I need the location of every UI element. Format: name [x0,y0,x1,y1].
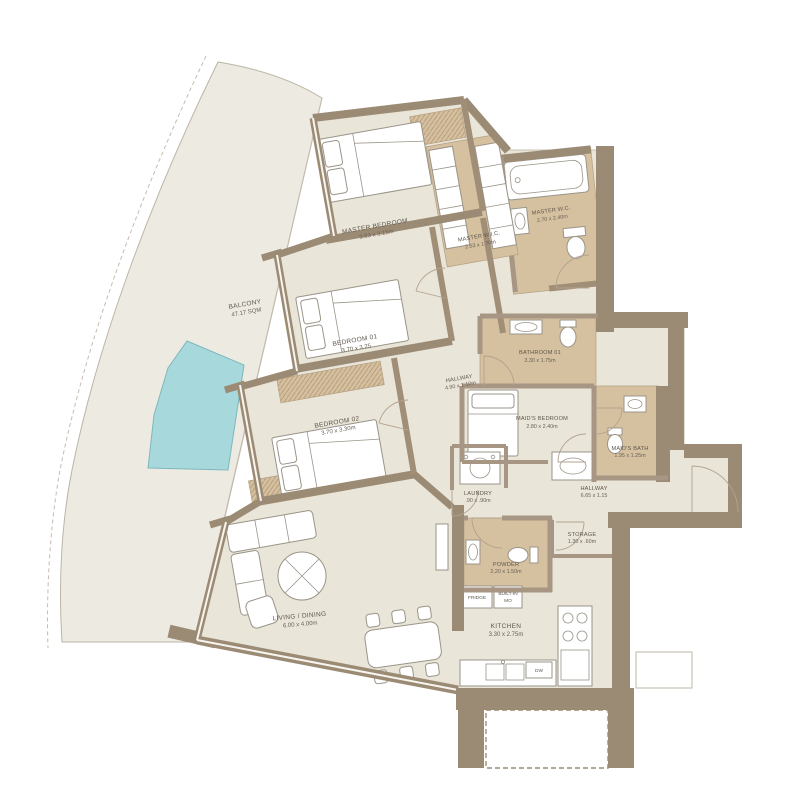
kitchen-dims: 3.30 x 2.75m [489,632,524,638]
fridge-label: FRIDGE [468,595,486,601]
hallway2-dims: 6.65 x 1.15 [581,493,608,499]
kitchen-label: KITCHEN [491,623,522,630]
coffee-table [278,552,326,600]
storage-dims: 1.30 x .60m [568,539,597,545]
floor-plan-page: BALCONY 47.17 SQM MASTER BEDROOM 3.83 x … [0,0,800,800]
washer [460,452,500,484]
laundry-label: LAUNDRY [464,491,492,497]
maids-bath-label: MAID'S BATH [611,446,648,452]
floor-plan-canvas: BALCONY 47.17 SQM MASTER BEDROOM 3.83 x … [0,0,800,800]
bathroom01-dims: 3.30 x 1.75m [524,358,556,364]
built-in-label-1: BUILT-IN [498,591,518,597]
storage-label: STORAGE [568,532,597,538]
powder-label: POWDER [493,562,519,568]
ac-ledge [486,710,608,768]
maids-bedroom-label: MAID'S BEDROOM [516,416,568,422]
maids-bedroom-dims: 2.80 x 2.40m [526,424,558,430]
dishwasher-label: DW [535,668,543,674]
bathroom01-label: BATHROOM 01 [519,350,561,356]
hallway2-label: HALLWAY [580,486,607,492]
laundry-dims: .90 x .90m [465,498,491,504]
maids-bath-dims: 1.95 x 1.25m [614,453,646,459]
built-in-label-2: MO [504,598,512,604]
stove-icon [558,606,592,686]
tv-unit [436,524,448,570]
service-ledge-box [636,652,692,688]
powder-dims: 2.20 x 1.50m [490,569,522,575]
